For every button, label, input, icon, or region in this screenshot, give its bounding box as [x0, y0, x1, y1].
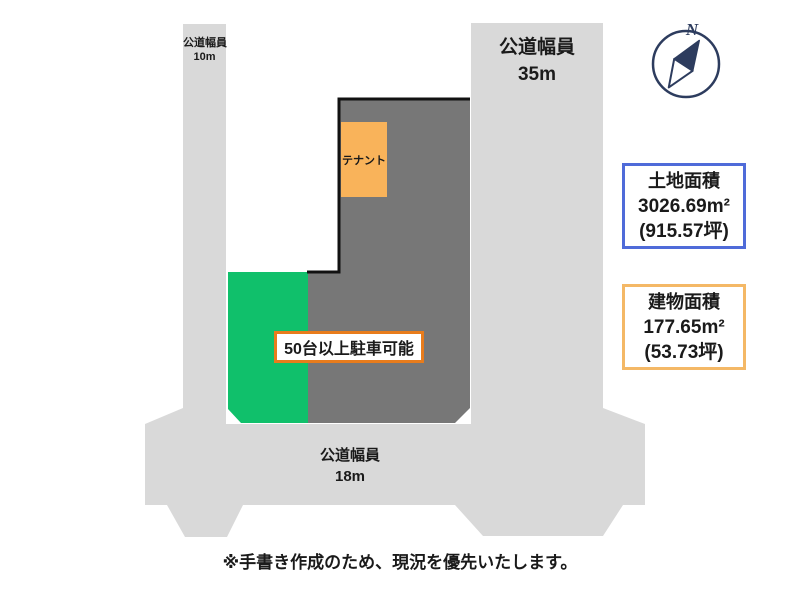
road-bottom-label: 公道幅員 18m [290, 445, 410, 487]
road-left-name: 公道幅員 [183, 36, 226, 50]
building-area-box: 建物面積 177.65m² (53.73坪) [622, 284, 746, 370]
intersection-right-chamfer [603, 408, 645, 424]
land-area-tsubo: (915.57坪) [639, 219, 729, 244]
land-area-m2: 3026.69m² [638, 194, 730, 219]
road-bottom-width: 18m [290, 466, 410, 487]
building-area-m2: 177.65m² [643, 315, 724, 340]
site-plan-diagram: N 公道幅員 10m 公道幅員 35m 公道幅員 18m テナント 50台以上駐… [0, 0, 800, 600]
building-area-title: 建物面積 [648, 290, 720, 315]
road-left-stub [167, 505, 243, 537]
footnote: ※手書き作成のため、現況を優先いたします。 [0, 548, 800, 573]
compass-needle [660, 35, 709, 94]
road-left-width: 10m [183, 50, 226, 64]
building-area-tsubo: (53.73坪) [644, 340, 723, 365]
road-bottom-name: 公道幅員 [290, 445, 410, 466]
road-right-name: 公道幅員 [471, 34, 603, 61]
road-right-label: 公道幅員 35m [471, 34, 603, 88]
tenant-block: テナント [341, 122, 387, 197]
road-left-label: 公道幅員 10m [183, 36, 226, 64]
land-area-title: 土地面積 [648, 169, 720, 194]
parcel-shape [308, 99, 470, 423]
road-right-width: 35m [471, 61, 603, 88]
parking-capacity-label: 50台以上駐車可能 [284, 335, 414, 359]
land-area-box: 土地面積 3026.69m² (915.57坪) [622, 163, 746, 249]
parking-capacity-sign: 50台以上駐車可能 [274, 331, 424, 363]
intersection-left-chamfer [145, 408, 183, 424]
road-right-stub [455, 505, 623, 536]
compass-north-label: N [685, 20, 699, 39]
tenant-label: テナント [342, 152, 386, 168]
